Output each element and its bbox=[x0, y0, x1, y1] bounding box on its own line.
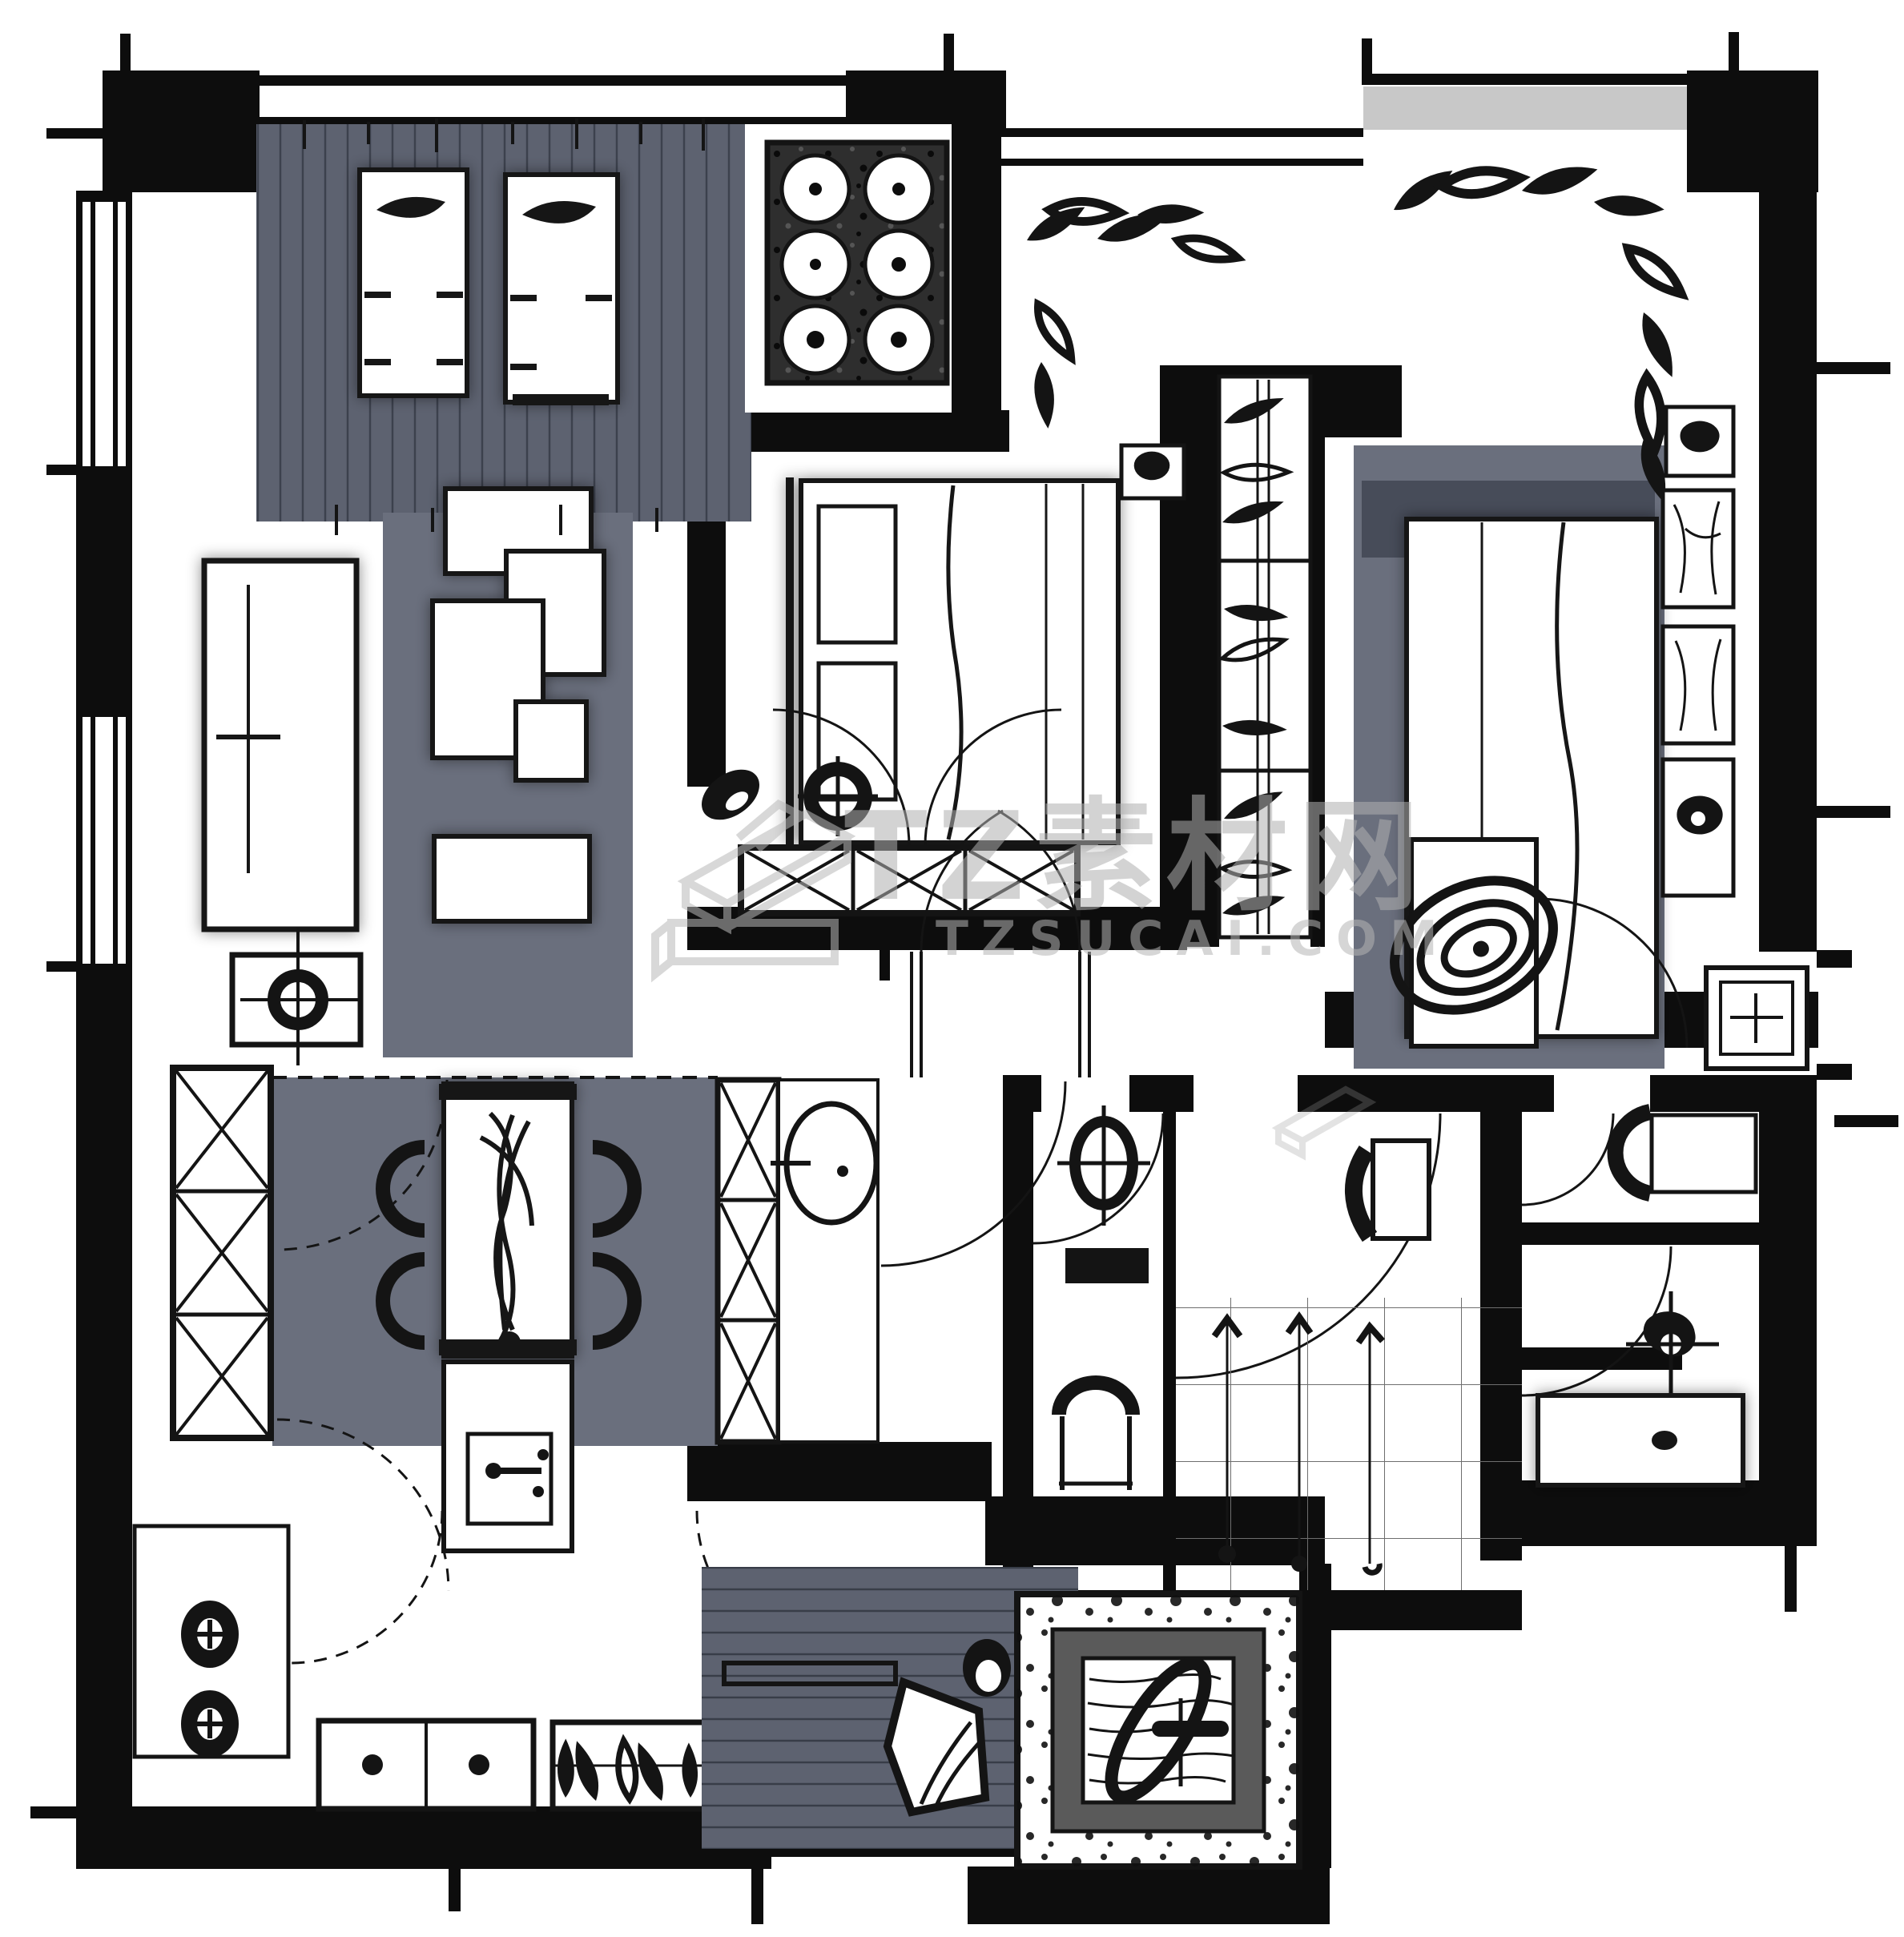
kitchen-counter bbox=[135, 1526, 288, 1758]
wall bbox=[1163, 1112, 1176, 1593]
pillow bbox=[819, 506, 896, 642]
wall bbox=[1759, 191, 1817, 952]
wall bbox=[1650, 1075, 1817, 1112]
toilet-room bbox=[1033, 1105, 1163, 1490]
wall bbox=[1522, 1222, 1817, 1245]
window bbox=[83, 202, 126, 466]
pillow bbox=[1663, 490, 1733, 607]
dimension-tick bbox=[880, 936, 890, 981]
handle bbox=[469, 1754, 489, 1775]
dining-table bbox=[439, 1084, 577, 1356]
wall bbox=[1522, 1347, 1682, 1370]
wall bbox=[1003, 1075, 1041, 1112]
wall bbox=[968, 1867, 1330, 1924]
desk-chair bbox=[1354, 1150, 1370, 1237]
kitchen-island bbox=[444, 1362, 572, 1551]
dimension-tick bbox=[1834, 1115, 1898, 1127]
lounge-chair bbox=[505, 175, 618, 405]
window bbox=[258, 75, 852, 86]
wall bbox=[1759, 1080, 1817, 1487]
dimension-tick bbox=[46, 128, 114, 139]
drain bbox=[1652, 1431, 1677, 1450]
vanity-basin bbox=[1706, 968, 1807, 1069]
window bbox=[1363, 87, 1690, 130]
dressing-room bbox=[1176, 1113, 1522, 1590]
tv-cabinet bbox=[204, 561, 356, 929]
wall bbox=[1817, 950, 1852, 968]
side-lamp-table bbox=[232, 928, 360, 1065]
laundry-balcony bbox=[256, 124, 751, 521]
planter-box bbox=[551, 1722, 710, 1809]
outdoor-dining-table bbox=[767, 143, 947, 383]
modular-sofa bbox=[433, 489, 604, 921]
dimension-tick bbox=[30, 1806, 78, 1818]
dimension-tick bbox=[944, 34, 954, 82]
dimension-tick bbox=[1362, 38, 1372, 85]
sofa-ottoman bbox=[516, 702, 586, 780]
handle bbox=[362, 1754, 383, 1775]
shoe-cabinet bbox=[173, 1068, 271, 1438]
dimension-tick bbox=[751, 1857, 763, 1924]
window bbox=[1001, 159, 1363, 166]
coffee-table bbox=[434, 836, 590, 921]
wall bbox=[1817, 1064, 1852, 1080]
wall bbox=[103, 70, 260, 192]
window bbox=[1363, 74, 1690, 85]
window bbox=[1001, 128, 1363, 137]
spa bbox=[1017, 1594, 1299, 1867]
pillow bbox=[1663, 626, 1733, 743]
wall bbox=[1480, 1480, 1817, 1546]
watermark-subtitle: TZSUCAI.COM bbox=[936, 911, 1451, 967]
floor-plan-canvas: TZ素材网 TZSUCAI.COM bbox=[0, 0, 1904, 1937]
dimension-tick bbox=[1817, 362, 1890, 374]
wall bbox=[1003, 1112, 1033, 1593]
dressing-desk bbox=[1354, 1141, 1429, 1238]
wall bbox=[952, 112, 1001, 418]
pillow-shelf bbox=[1663, 490, 1733, 743]
bathtub bbox=[1538, 1395, 1743, 1485]
lounge-chair bbox=[360, 170, 467, 396]
nightstand bbox=[1121, 445, 1184, 498]
outdoor-dining-room bbox=[745, 124, 952, 413]
spa-tub bbox=[1083, 1651, 1234, 1810]
dimension-tick bbox=[1729, 32, 1739, 88]
door-swing bbox=[1522, 1113, 1613, 1205]
nightstand bbox=[1666, 407, 1733, 476]
base-cabinet bbox=[319, 1721, 533, 1809]
nightstand bbox=[1663, 759, 1733, 896]
floor-plan-sketch: TZ素材网 TZSUCAI.COM bbox=[0, 0, 1904, 1937]
dimension-tick bbox=[120, 34, 131, 88]
dimension-tick bbox=[1785, 1546, 1797, 1612]
bathroom-chair bbox=[1059, 1383, 1133, 1490]
wall bbox=[1687, 70, 1818, 192]
window bbox=[83, 717, 126, 964]
dimension-tick bbox=[1817, 806, 1890, 818]
toilet bbox=[1057, 1105, 1150, 1226]
table-lamp bbox=[1134, 452, 1170, 481]
watermark-title: TZ素材网 bbox=[844, 786, 1429, 928]
wall bbox=[76, 1806, 771, 1869]
urinal-basin bbox=[1616, 1112, 1756, 1194]
wall bbox=[1129, 1075, 1194, 1112]
wall-shelf bbox=[1065, 1248, 1149, 1283]
door-swing bbox=[290, 1511, 442, 1663]
dimension-tick bbox=[449, 1867, 461, 1911]
dining-room bbox=[173, 1068, 718, 1591]
wall bbox=[687, 1442, 992, 1501]
living-room bbox=[204, 489, 633, 1065]
